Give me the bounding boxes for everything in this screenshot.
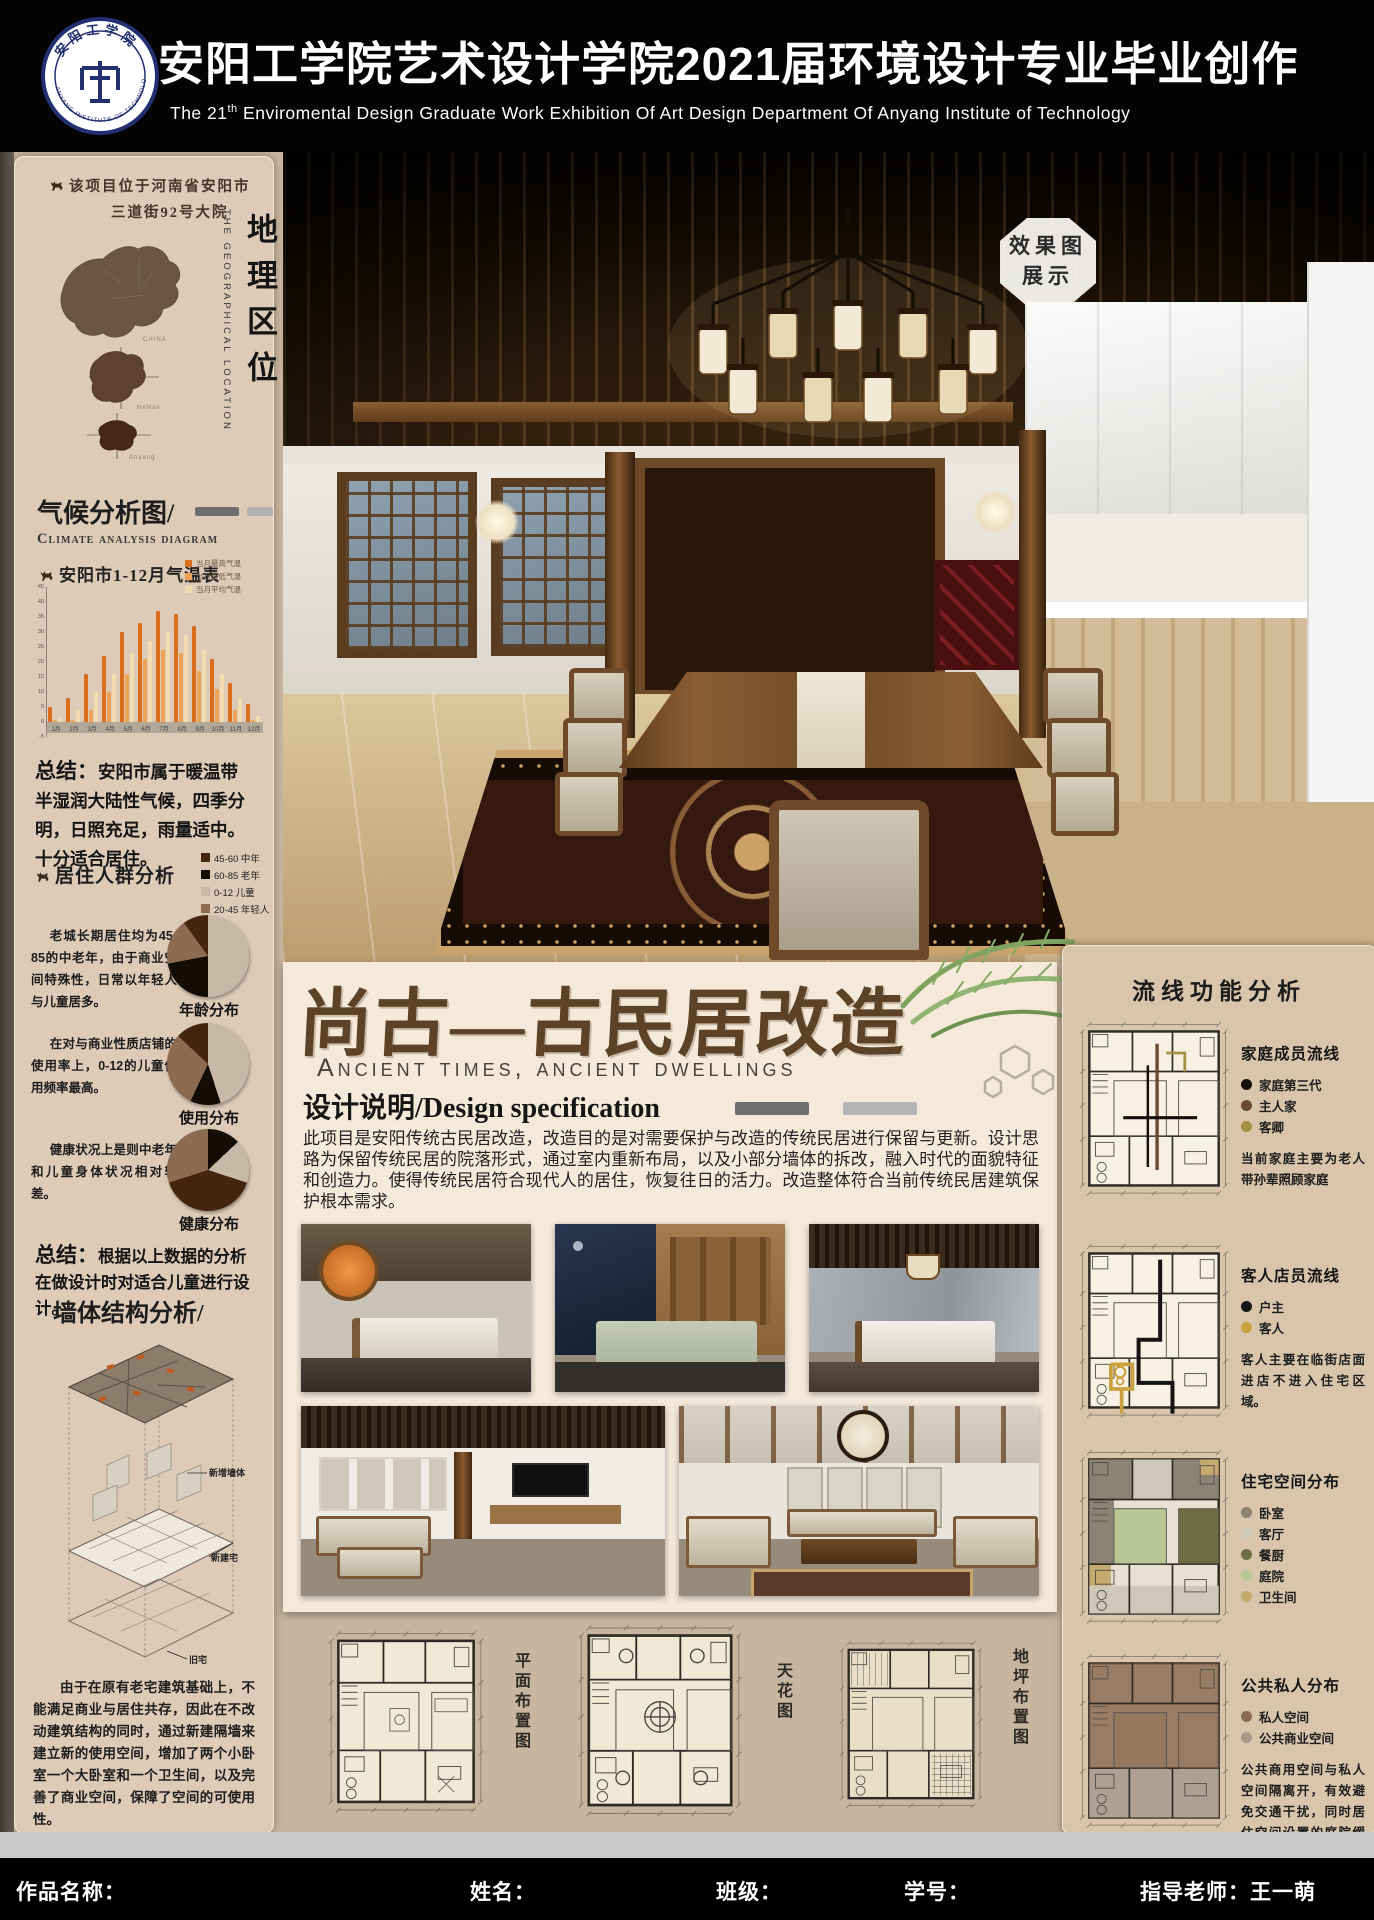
population-pie-row: 健康状况上是则中老年和儿童身体状况相对较差。健康分布	[31, 1129, 259, 1235]
temp-bar	[148, 641, 152, 722]
section-text: 客人主要在临街店面进店不进入住宅区域。	[1241, 1350, 1365, 1413]
temp-bar	[233, 710, 237, 722]
dining-chair	[1047, 718, 1111, 778]
pie-chart	[167, 1023, 249, 1105]
pie-caption: 年龄分布	[159, 999, 259, 1020]
y-axis-tick: -5	[33, 734, 44, 740]
dining-chair	[1051, 772, 1119, 836]
y-axis-tick: 0	[33, 719, 44, 725]
lattice-window	[337, 472, 477, 658]
floor-plan-diagram	[1077, 1232, 1231, 1432]
bedroom-render-2	[555, 1224, 785, 1392]
footer-field-5: 指导老师：王一萌	[1140, 1876, 1316, 1906]
left-sidebar: 该项目位于河南省安阳市 三道街92号大院 CHINA HeNan Anyang …	[14, 156, 274, 1834]
legend-dot	[1241, 1732, 1252, 1743]
y-axis-tick: 35	[33, 614, 44, 620]
legend-label: 20-45 年轻人	[214, 902, 269, 916]
legend-dot	[1241, 1301, 1252, 1312]
plan-label-1: 平面布置图	[508, 1652, 532, 1752]
legend-label: 餐厨	[1259, 1545, 1284, 1564]
legend-label: 主人家	[1259, 1096, 1297, 1115]
legend-dot	[1241, 1528, 1252, 1539]
legend-label: 私人空间	[1259, 1707, 1309, 1726]
legend-item: 庭院	[1241, 1565, 1365, 1586]
location-maps: CHINA HeNan Anyang	[43, 229, 195, 465]
subtitle-prefix: The 21	[170, 103, 227, 123]
legend-dot	[1241, 1570, 1252, 1581]
legend-swatch	[201, 870, 210, 879]
legend-dot	[1241, 1711, 1252, 1722]
pie-caption: 健康分布	[159, 1213, 259, 1234]
section-title: 住宅空间分布	[1241, 1470, 1365, 1492]
hero-back-wall	[283, 464, 1025, 694]
temp-bar	[156, 611, 160, 722]
floor-plan-diagram	[1077, 1010, 1231, 1210]
footer-field-1: 作品名称：	[16, 1876, 126, 1906]
project-location-line1: 该项目位于河南省安阳市	[49, 175, 251, 196]
ceiling-plan-drawing	[560, 1622, 760, 1822]
project-subtitle: Ancient times, ancient dwellings	[317, 1054, 797, 1083]
month-label: 2月	[65, 724, 83, 733]
hero-render-image	[283, 152, 1374, 962]
climate-heading: 气候分析图/	[37, 493, 174, 530]
temp-bar	[246, 704, 250, 722]
section-title: 家庭成员流线	[1241, 1042, 1365, 1064]
living-room-render-2	[679, 1406, 1039, 1596]
legend-dot	[1241, 1100, 1252, 1111]
month-label: 3月	[83, 724, 101, 733]
dining-chair	[563, 718, 627, 778]
flow-section-4: 公共私人分布私人空间公共商业空间公共商用空间与私人空间隔离开，有效避免交通干扰，…	[1063, 1642, 1374, 1842]
legend-swatch	[201, 853, 210, 862]
wall-lamp	[973, 490, 1017, 534]
legend-dot	[1241, 1507, 1252, 1518]
legend-item: 客人	[1241, 1317, 1365, 1338]
floor-plan-diagram	[1077, 1438, 1231, 1638]
pie-chart	[167, 915, 249, 997]
design-spec-text: 此项目是安阳传统古民居改造，改造目的是对需要保护与改造的传统民居进行保留与更新。…	[303, 1128, 1039, 1212]
population-heading: 居住人群分析	[35, 861, 175, 888]
temp-bar	[66, 698, 70, 722]
wall-lamp	[475, 500, 519, 544]
legend-item: 卧室	[1241, 1502, 1365, 1523]
temp-bar	[202, 650, 206, 722]
section-title: 客人店员流线	[1241, 1264, 1365, 1286]
bedroom-render-3	[809, 1224, 1039, 1392]
legend-label: 客人	[1259, 1318, 1284, 1337]
map-label-china: CHINA	[143, 337, 167, 343]
temp-bar	[107, 692, 111, 722]
section-text: 当前家庭主要为老人带孙辈照顾家庭	[1241, 1149, 1365, 1191]
temp-bar	[174, 614, 178, 722]
temp-bar	[210, 659, 214, 722]
pie-description: 健康状况上是则中老年和儿童身体状况相对较差。	[31, 1139, 177, 1205]
legend-label: 庭院	[1259, 1566, 1284, 1585]
legend-label: 家庭第三代	[1259, 1075, 1322, 1094]
legend-item: 餐厨	[1241, 1544, 1365, 1565]
design-spec-heading: 设计说明/Design specification	[303, 1086, 660, 1126]
plan-label-3: 地坪布置图	[1006, 1648, 1030, 1748]
legend-item: 主人家	[1241, 1095, 1365, 1116]
legend-item: 私人空间	[1241, 1706, 1365, 1727]
wine-rack	[935, 560, 1019, 670]
y-axis-tick: 5	[33, 704, 44, 710]
render-badge: 效果图 展示	[1000, 218, 1096, 306]
legend-label: 45-60 中年	[214, 851, 260, 865]
pie-description: 老城长期居住均为45-85的中老年，由于商业空间特殊性，日常以年轻人与儿童居多。	[31, 925, 177, 1013]
legend-label: 卧室	[1259, 1503, 1284, 1522]
heading-bar-dark	[195, 507, 239, 516]
heading-bar-light	[247, 507, 273, 516]
footer-field-2: 姓名：	[470, 1876, 536, 1906]
y-axis-tick: 45	[33, 584, 44, 590]
axon-label-new-walls: 新增墙体	[209, 1467, 246, 1478]
legend-dot	[1241, 1121, 1252, 1132]
month-label: 10月	[209, 724, 227, 733]
legend-item: 当月最高气温	[185, 557, 271, 570]
poster-header: 安阳工学院 ANYANG INSTITUTE OF TECHNOLOGY 安阳工…	[0, 0, 1374, 152]
legend-item: 卫生间	[1241, 1586, 1365, 1607]
population-pie-row: 老城长期居住均为45-85的中老年，由于商业空间特殊性，日常以年轻人与儿童居多。…	[31, 915, 259, 1021]
cad-plans-strip: 平面布置图 天花图 地坪布置图	[283, 1614, 1057, 1832]
section-title: 公共私人分布	[1241, 1674, 1365, 1696]
legend-item: 60-85 老年	[201, 866, 273, 883]
map-label-henan: HeNan	[137, 405, 161, 411]
subtitle-rest: Enviromental Design Graduate Work Exhibi…	[238, 103, 1131, 123]
temperature-bar-chart: 454035302520151050-51月2月3月4月5月6月7月8月9月10…	[33, 587, 265, 755]
living-room-render-1	[301, 1406, 665, 1596]
dining-table	[619, 672, 1043, 768]
y-axis-tick: 40	[33, 599, 44, 605]
legend-label: 当月最高气温	[196, 558, 241, 569]
legend-label: 客厅	[1259, 1524, 1284, 1543]
temp-bar	[179, 653, 183, 722]
temp-bar	[143, 659, 147, 722]
temp-bar	[76, 710, 80, 722]
legend-item: 户主	[1241, 1296, 1365, 1317]
legend-item: 公共商业空间	[1241, 1727, 1365, 1748]
heading-bar-dark	[735, 1102, 809, 1115]
temp-bar	[120, 632, 124, 722]
summary-label: 总结：	[35, 1244, 98, 1267]
project-location-line2: 三道街92号大院	[111, 201, 229, 222]
wall-structure-text: 由于在原有老宅建筑基础上，不能满足商业与居住共存，因此在不改动建筑结构的同时，通…	[33, 1677, 255, 1831]
axon-label-old-house: 旧宅	[189, 1654, 207, 1665]
footer-field-3: 班级：	[716, 1876, 782, 1906]
legend-label: 公共商业空间	[1259, 1728, 1334, 1747]
temp-bar	[84, 674, 88, 722]
month-label: 7月	[155, 724, 173, 733]
month-label: 12月	[245, 724, 263, 733]
exhibition-subtitle: The 21th Enviromental Design Graduate Wo…	[170, 103, 1130, 124]
temp-bar	[89, 710, 93, 722]
paving-plan-drawing	[826, 1638, 996, 1813]
legend-item: 客厅	[1241, 1523, 1365, 1544]
flow-section-2: 客人店员流线户主客人客人主要在临街店面进店不进入住宅区域。	[1063, 1232, 1374, 1432]
climate-heading-en: Climate analysis diagram	[37, 531, 218, 548]
population-heading-text: 居住人群分析	[55, 866, 175, 887]
circulation-heading: 流线功能分析	[1063, 972, 1374, 1006]
dining-chair	[555, 772, 623, 836]
pie-description: 在对与商业性质店铺的使用率上，0-12的儿童使用频率最高。	[31, 1033, 177, 1099]
temp-bar	[184, 635, 188, 722]
month-label: 6月	[137, 724, 155, 733]
legend-swatch	[201, 887, 210, 896]
legend-swatch	[185, 560, 192, 567]
month-label: 9月	[191, 724, 209, 733]
wall-structure-heading: 墙体结构分析/	[53, 1293, 204, 1328]
bedroom-render-1	[301, 1224, 531, 1392]
graduation-poster: 安阳工学院 ANYANG INSTITUTE OF TECHNOLOGY 安阳工…	[0, 0, 1374, 1920]
temp-bar	[125, 674, 129, 722]
temp-bar	[215, 689, 219, 722]
chandelier	[633, 208, 1063, 478]
deer-icon	[49, 180, 65, 192]
temp-bar	[197, 671, 201, 722]
legend-item: 家庭第三代	[1241, 1074, 1365, 1095]
y-axis-tick: 20	[33, 659, 44, 665]
temp-bar	[112, 674, 116, 722]
deer-icon	[39, 567, 55, 579]
pie-chart	[167, 1129, 249, 1211]
temp-bar	[130, 653, 134, 722]
month-label: 5月	[119, 724, 137, 733]
map-label-anyang: Anyang	[129, 455, 155, 461]
temp-bar	[48, 707, 52, 722]
section-info: 住宅空间分布卧室客厅餐厨庭院卫生间	[1241, 1448, 1365, 1607]
section-info: 客人店员流线户主客人客人主要在临街店面进店不进入住宅区域。	[1241, 1242, 1365, 1413]
x-axis-strip: 1月2月3月4月5月6月7月8月9月10月11月12月	[47, 722, 263, 733]
legend-dot	[1241, 1322, 1252, 1333]
flow-section-3: 住宅空间分布卧室客厅餐厨庭院卫生间	[1063, 1438, 1374, 1638]
legend-item: 45-60 中年	[201, 849, 273, 866]
legend-dot	[1241, 1549, 1252, 1560]
badge-line1: 效果图	[1009, 232, 1087, 262]
y-axis-tick: 10	[33, 689, 44, 695]
henan-map	[90, 352, 145, 403]
foreground-chair	[769, 800, 929, 960]
floor-plan-drawing	[316, 1628, 496, 1818]
temp-bar	[102, 656, 106, 722]
y-axis-tick: 15	[33, 674, 44, 680]
deer-icon	[35, 867, 51, 879]
y-axis-tick: 30	[33, 629, 44, 635]
temp-bar	[161, 650, 165, 722]
legend-item: 当月最低气温	[185, 570, 271, 583]
legend-dot	[1241, 1079, 1252, 1090]
temp-bar	[238, 698, 242, 722]
anyang-map	[99, 421, 137, 451]
month-label: 11月	[227, 724, 245, 733]
legend-swatch	[201, 904, 210, 913]
legend-dot	[1241, 1591, 1252, 1602]
month-label: 8月	[173, 724, 191, 733]
legend-label: 卫生间	[1259, 1587, 1297, 1606]
geo-title-cn: 地理区位	[237, 213, 282, 543]
legend-swatch	[185, 573, 192, 580]
china-map	[61, 247, 180, 338]
heading-bar-light	[843, 1102, 917, 1115]
exhibition-title: 安阳工学院艺术设计学院2021届环境设计专业毕业创作	[158, 28, 1358, 94]
legend-label: 当月最低气温	[196, 571, 241, 582]
axon-label-new-house: 新建宅	[211, 1552, 238, 1563]
legend-item: 0-12 儿童	[201, 883, 273, 900]
legend-item: 客卿	[1241, 1116, 1365, 1137]
population-pie-row: 在对与商业性质店铺的使用率上，0-12的儿童使用频率最高。使用分布	[31, 1023, 259, 1129]
patterned-carpet	[433, 750, 1073, 954]
footer-field-4: 学号：	[904, 1876, 970, 1906]
main-content-panel: 尚古—古民居改造 Ancient times, ancient dwelling…	[283, 962, 1057, 1612]
subtitle-sup: th	[227, 103, 237, 115]
legend-label: 户主	[1259, 1297, 1284, 1316]
legend-label: 0-12 儿童	[214, 885, 255, 899]
school-logo: 安阳工学院 ANYANG INSTITUTE OF TECHNOLOGY	[40, 16, 160, 136]
section-info: 家庭成员流线家庭第三代主人家客卿当前家庭主要为老人带孙辈照顾家庭	[1241, 1020, 1365, 1191]
pie-caption: 使用分布	[159, 1107, 259, 1128]
footer-divider	[0, 1832, 1374, 1858]
temp-bar	[220, 674, 224, 722]
flow-section-1: 家庭成员流线家庭第三代主人家客卿当前家庭主要为老人带孙辈照顾家庭	[1063, 1010, 1374, 1210]
legend-label: 60-85 老年	[214, 868, 260, 882]
badge-line2: 展示	[1022, 262, 1074, 292]
month-label: 4月	[101, 724, 119, 733]
left-dark-edge	[0, 152, 14, 1832]
location-text: 该项目位于河南省安阳市	[69, 179, 251, 195]
wall-structure-axon-diagram: 新增墙体 新建宅 旧宅	[37, 1325, 251, 1673]
geo-title-en: THE GEOGRAPHICAL LOCATION	[221, 209, 232, 469]
summary-label: 总结：	[35, 760, 98, 783]
population-legend: 45-60 中年60-85 老年0-12 儿童20-45 年轻人	[201, 849, 273, 917]
right-sidebar: 流线功能分析 家庭成员流线家庭第三代主人家客卿当前家庭主要为老人带孙辈照顾家庭客…	[1062, 945, 1374, 1834]
legend-label: 客卿	[1259, 1117, 1284, 1136]
temp-bar	[138, 623, 142, 722]
floor-plan-diagram	[1077, 1642, 1231, 1842]
temp-bar	[192, 626, 196, 722]
temp-bar	[94, 692, 98, 722]
display-shelf	[635, 458, 945, 700]
poster-footer: 作品名称：姓名：班级：学号：指导老师：王一萌	[0, 1858, 1374, 1920]
y-axis-tick: 25	[33, 644, 44, 650]
temp-bar	[228, 683, 232, 722]
dining-chair	[569, 668, 629, 724]
temp-bar	[166, 632, 170, 722]
plan-label-2: 天花图	[770, 1662, 794, 1722]
month-label: 1月	[47, 724, 65, 733]
dining-chair	[1043, 668, 1103, 724]
